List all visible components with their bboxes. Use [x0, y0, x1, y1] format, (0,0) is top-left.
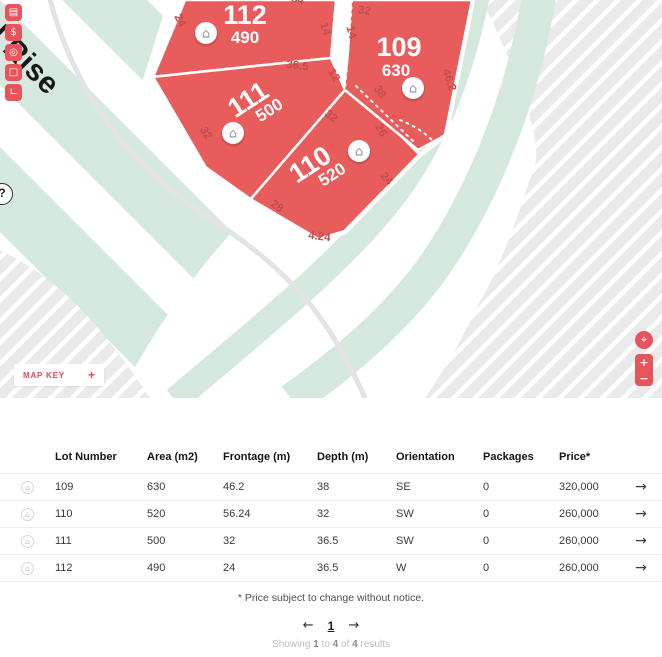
cell-frontage: 32 [223, 535, 317, 547]
cell-depth: 38 [317, 481, 396, 493]
page-number[interactable]: 1 [328, 619, 335, 633]
cell-area: 520 [147, 508, 223, 520]
cell-frontage: 24 [223, 562, 317, 574]
measure-icon-glyph: ∟ [9, 87, 17, 98]
header-price: Price* [559, 451, 620, 463]
cell-area: 490 [147, 562, 223, 574]
cell-lot-number: 109 [55, 481, 147, 493]
cell-area: 630 [147, 481, 223, 493]
cell-lot-number: 112 [55, 562, 147, 574]
row-detail-arrow-icon[interactable]: → [635, 479, 647, 495]
lot-marker-icon: ⌂ [21, 481, 34, 494]
plus-icon: + [88, 368, 95, 382]
dimension-label: 32 [357, 4, 371, 18]
estate-map[interactable]: 24 54 32 14 14 36.5 12 46.2 38 32 26 32 … [0, 0, 662, 398]
zoom-in-button[interactable]: + [635, 354, 653, 370]
compass-icon[interactable]: ◎ [5, 44, 22, 61]
showing-of-word: of [341, 639, 349, 650]
prev-page-arrow-icon[interactable]: ← [303, 618, 314, 633]
cell-price: 320,000 [559, 481, 620, 493]
cell-lot-number: 111 [55, 535, 147, 547]
dollar-icon-glyph: $ [10, 27, 16, 38]
measure-icon[interactable]: ∟ [5, 84, 22, 101]
table-row[interactable]: ⌂ 109 630 46.2 38 SE 0 320,000 → [0, 474, 662, 501]
cell-price: 260,000 [559, 535, 620, 547]
cell-depth: 32 [317, 508, 396, 520]
map-toolbar: ▤ $ ◎ □ ∟ [5, 4, 22, 101]
cell-frontage: 46.2 [223, 481, 317, 493]
house-icon: ⌂ [25, 564, 30, 573]
header-area: Area (m2) [147, 451, 223, 463]
house-icon: ⌂ [229, 127, 237, 142]
lot-area-text: 630 [382, 61, 410, 80]
lot-table-section: Lot Number Area (m2) Frontage (m) Depth … [0, 398, 662, 650]
results-summary: Showing 1 to 4 of 4 results [0, 639, 662, 650]
compass-icon-glyph: ◎ [9, 47, 18, 58]
building-icon[interactable]: ▤ [5, 4, 22, 21]
cell-packages: 0 [483, 535, 559, 547]
map-key-button[interactable]: MAP KEY + [14, 364, 104, 386]
zoom-control: + − [635, 354, 653, 386]
header-lot-number: Lot Number [55, 451, 147, 463]
header-depth: Depth (m) [317, 451, 396, 463]
header-orientation: Orientation [396, 451, 483, 463]
cell-packages: 0 [483, 562, 559, 574]
map-key-label: MAP KEY [23, 371, 88, 380]
cell-price: 260,000 [559, 562, 620, 574]
house-icon: ⌂ [202, 27, 210, 42]
showing-to-word: to [322, 639, 330, 650]
lot-marker-icon: ⌂ [21, 535, 34, 548]
house-icon: ⌂ [355, 145, 363, 160]
house-icon: ⌂ [25, 483, 30, 492]
lot-number-text: 112 [223, 0, 267, 30]
cell-packages: 0 [483, 508, 559, 520]
cell-orientation: SW [396, 508, 483, 520]
header-frontage: Frontage (m) [223, 451, 317, 463]
next-page-arrow-icon[interactable]: → [348, 618, 359, 633]
house-icon: ⌂ [25, 537, 30, 546]
cell-lot-number: 110 [55, 508, 147, 520]
dollar-icon[interactable]: $ [5, 24, 22, 41]
row-detail-arrow-icon[interactable]: → [635, 560, 647, 576]
cell-frontage: 56.24 [223, 508, 317, 520]
lot-number-text: 109 [376, 32, 421, 62]
cell-packages: 0 [483, 481, 559, 493]
cell-price: 260,000 [559, 508, 620, 520]
cell-orientation: SE [396, 481, 483, 493]
crosshair-icon: ⌖ [641, 333, 647, 346]
building-icon-glyph: ▤ [9, 7, 18, 18]
showing-from: 1 [313, 639, 319, 650]
lot-marker-icon: ⌂ [21, 508, 34, 521]
cell-depth: 36.5 [317, 562, 396, 574]
pagination: ← 1 → [0, 618, 662, 633]
showing-results-word: results [360, 639, 389, 650]
house-icon: ⌂ [25, 510, 30, 519]
table-row[interactable]: ⌂ 112 490 24 36.5 W 0 260,000 → [0, 555, 662, 582]
locate-button[interactable]: ⌖ [635, 331, 653, 349]
price-disclaimer: * Price subject to change without notice… [0, 592, 662, 604]
row-detail-arrow-icon[interactable]: → [635, 533, 647, 549]
table-row[interactable]: ⌂ 110 520 56.24 32 SW 0 260,000 → [0, 501, 662, 528]
header-packages: Packages [483, 451, 559, 463]
cell-orientation: SW [396, 535, 483, 547]
lot-marker-icon: ⌂ [21, 562, 34, 575]
cell-area: 500 [147, 535, 223, 547]
table-header-row: Lot Number Area (m2) Frontage (m) Depth … [0, 441, 662, 474]
row-detail-arrow-icon[interactable]: → [635, 506, 647, 522]
table-row[interactable]: ⌂ 111 500 32 36.5 SW 0 260,000 → [0, 528, 662, 555]
showing-total: 4 [352, 639, 358, 650]
select-area-icon[interactable]: □ [5, 64, 22, 81]
house-icon: ⌂ [409, 82, 417, 97]
select-area-icon-glyph: □ [9, 67, 18, 78]
cell-orientation: W [396, 562, 483, 574]
cell-depth: 36.5 [317, 535, 396, 547]
map-canvas: 24 54 32 14 14 36.5 12 46.2 38 32 26 32 … [0, 0, 662, 398]
lot-area-text: 490 [231, 28, 259, 47]
showing-to: 4 [333, 639, 339, 650]
zoom-out-button[interactable]: − [635, 370, 653, 386]
showing-label: Showing [272, 639, 310, 650]
